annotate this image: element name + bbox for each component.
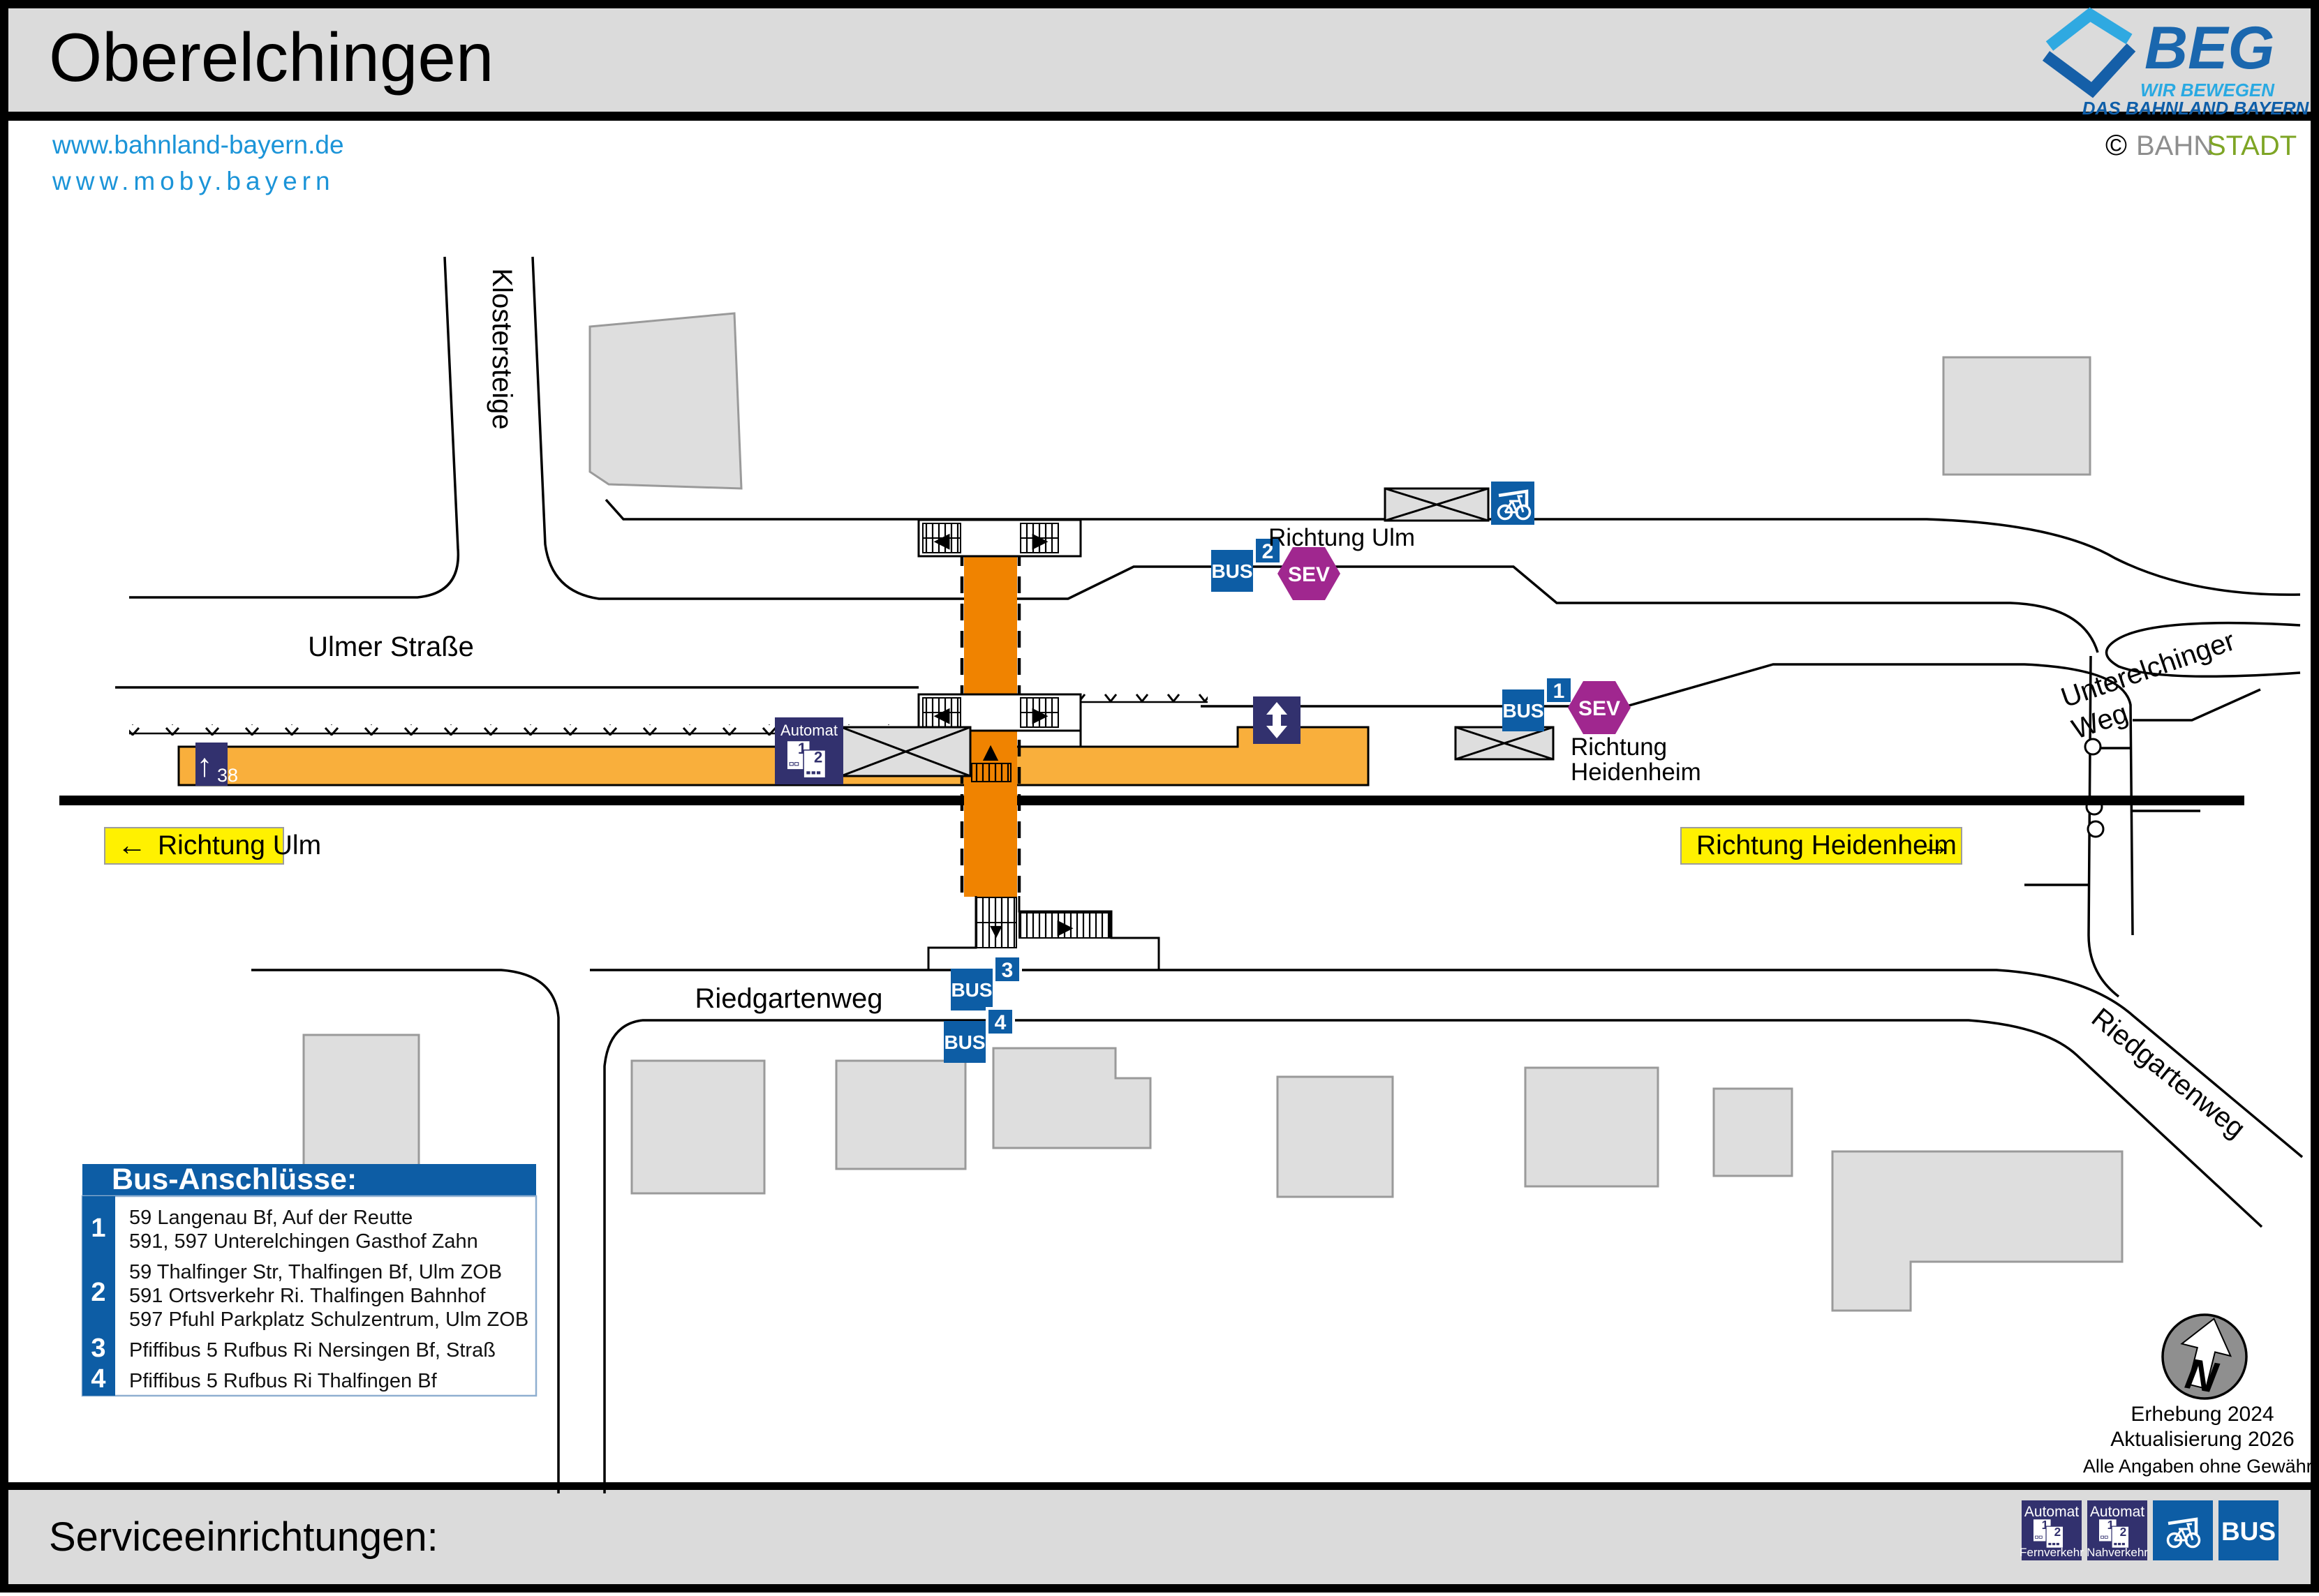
- direction-arrow-left-icon: ←: [117, 828, 147, 861]
- bus-badge-label: BUS: [1211, 560, 1252, 582]
- bus-stop-number: 1: [1553, 680, 1565, 703]
- building: [590, 313, 741, 489]
- link-bahnland-bayern[interactable]: www.bahnland-bayern.de: [52, 130, 344, 159]
- legend-item-number: 4: [91, 1364, 105, 1394]
- bus-stop-number: 4: [995, 1011, 1007, 1034]
- footer-icon-automat-nahverkehr: Automat Nahverkehr: [2087, 1500, 2148, 1560]
- automat-sub-label: Nahverkehr: [2087, 1546, 2148, 1559]
- direction-label: Richtung Heidenheim: [1696, 830, 1957, 860]
- automat-label: Automat: [2090, 1504, 2144, 1520]
- stair-arrow-up-icon: ▲: [977, 738, 1004, 767]
- legend-bus-connections: Bus-Anschlüsse: 1 2 3 4 59 Langenau Bf, …: [82, 1163, 536, 1396]
- legend-line: 591, 597 Unterelchingen Gasthof Zahn: [129, 1230, 478, 1253]
- building: [632, 1061, 764, 1193]
- footer-title: Serviceeinrichtungen:: [49, 1514, 438, 1560]
- footer-icon-automat-fernverkehr: Automat Fernverkehr: [2020, 1500, 2084, 1560]
- legend-line: 597 Pfuhl Parkplatz Schulzentrum, Ulm ZO…: [129, 1308, 528, 1331]
- automat-map-icon: Automat: [775, 717, 843, 784]
- map-canvas: 1 2 Oberelchingen www.bahnland-bayern.de…: [0, 0, 2319, 1593]
- stair-arrow-right-icon: ▶: [1057, 916, 1073, 939]
- fence-marks-east: [1075, 693, 1208, 704]
- stair-arrow-left-icon: ◀: [933, 703, 949, 726]
- crossing-access-icon: [1253, 696, 1301, 744]
- footer-icon-bike-parking: [2153, 1500, 2213, 1560]
- link-moby-bayern[interactable]: www.moby.bayern: [52, 167, 335, 195]
- note-survey: Erhebung 2024: [2131, 1403, 2274, 1426]
- direction-arrow-right-icon: →: [1921, 828, 1950, 861]
- legend-item-number: 3: [91, 1334, 105, 1363]
- bus-badge-label: BUS: [1502, 700, 1543, 722]
- building: [1943, 357, 2090, 475]
- footer-icon-bus: BUS: [2218, 1500, 2279, 1560]
- beg-tagline-2: DAS BAHNLAND BAYERN: [2082, 98, 2310, 119]
- bus-stop-number: 3: [1002, 959, 1014, 982]
- credit-stadt: STADT: [2207, 130, 2297, 161]
- note-richtung-heidenheim-1: Richtung: [1571, 733, 1667, 761]
- note-disclaimer: Alle Angaben ohne Gewähr!: [2083, 1456, 2318, 1477]
- legend-line: Pfiffibus 5 Rufbus Ri Nersingen Bf, Stra…: [129, 1339, 496, 1362]
- note-richtung-ulm: Richtung Ulm: [1268, 524, 1415, 551]
- direction-box-ulm: ← Richtung Ulm: [105, 828, 321, 864]
- street-label-ulmer-strasse: Ulmer Straße: [308, 632, 474, 662]
- station-environment-plan: 1 2 Oberelchingen www.bahnland-bayern.de…: [0, 0, 2319, 1593]
- automat-label: Automat: [2024, 1504, 2079, 1520]
- footer-separator: [7, 1482, 2312, 1490]
- note-update: Aktualisierung 2026: [2110, 1428, 2295, 1451]
- stair-arrow-down-icon: ▼: [986, 920, 1007, 943]
- direction-label: Richtung Ulm: [158, 830, 321, 860]
- shelter: [1455, 727, 1553, 759]
- building: [1714, 1089, 1792, 1176]
- legend-line: Pfiffibus 5 Rufbus Ri Thalfingen Bf: [129, 1370, 438, 1392]
- platform-number: 38: [217, 765, 238, 786]
- header-separator: [7, 112, 2312, 121]
- automat-sub-label: Fernverkehr: [2020, 1546, 2084, 1559]
- building: [1525, 1068, 1658, 1186]
- street-label-klostersteige: Klostersteige: [487, 268, 517, 429]
- bus-badge-label: BUS: [944, 1031, 985, 1053]
- bike-parking-map-icon: [1491, 482, 1534, 525]
- sev-badge-label: SEV: [1578, 697, 1620, 720]
- shelter: [841, 727, 970, 776]
- street-label-riedgartenweg: Riedgartenweg: [695, 983, 882, 1014]
- railway-track: [59, 796, 2244, 805]
- stair-arrow-right-icon: ▶: [1032, 529, 1048, 552]
- direction-box-heidenheim: Richtung Heidenheim →: [1681, 828, 1962, 864]
- platform-arrow-icon: ↑: [197, 747, 213, 783]
- legend-item-number: 1: [91, 1214, 105, 1243]
- stair-arrow-right-icon: ▶: [1032, 703, 1048, 726]
- bus-badge-label: BUS: [951, 979, 992, 1001]
- sev-badge-label: SEV: [1288, 563, 1330, 586]
- page-title: Oberelchingen: [49, 19, 494, 96]
- credit-bahn: BAHN: [2136, 130, 2214, 161]
- shelter: [1385, 489, 1488, 521]
- beg-logo-text: BEG: [2144, 15, 2274, 82]
- legend-line: 591 Ortsverkehr Ri. Thalfingen Bahnhof: [129, 1285, 486, 1307]
- building: [836, 1061, 965, 1169]
- copyright-icon: ©: [2105, 128, 2127, 161]
- note-richtung-heidenheim-2: Heidenheim: [1571, 759, 1701, 786]
- legend-line: 59 Langenau Bf, Auf der Reutte: [129, 1207, 413, 1229]
- bus-badge-label: BUS: [2221, 1517, 2276, 1546]
- legend-item-number: 2: [91, 1278, 105, 1307]
- stair-arrow-left-icon: ◀: [933, 529, 949, 552]
- legend-title: Bus-Anschlüsse:: [112, 1163, 357, 1196]
- legend-line: 59 Thalfinger Str, Thalfingen Bf, Ulm ZO…: [129, 1261, 502, 1283]
- building: [1277, 1077, 1393, 1197]
- automat-label: Automat: [780, 722, 838, 739]
